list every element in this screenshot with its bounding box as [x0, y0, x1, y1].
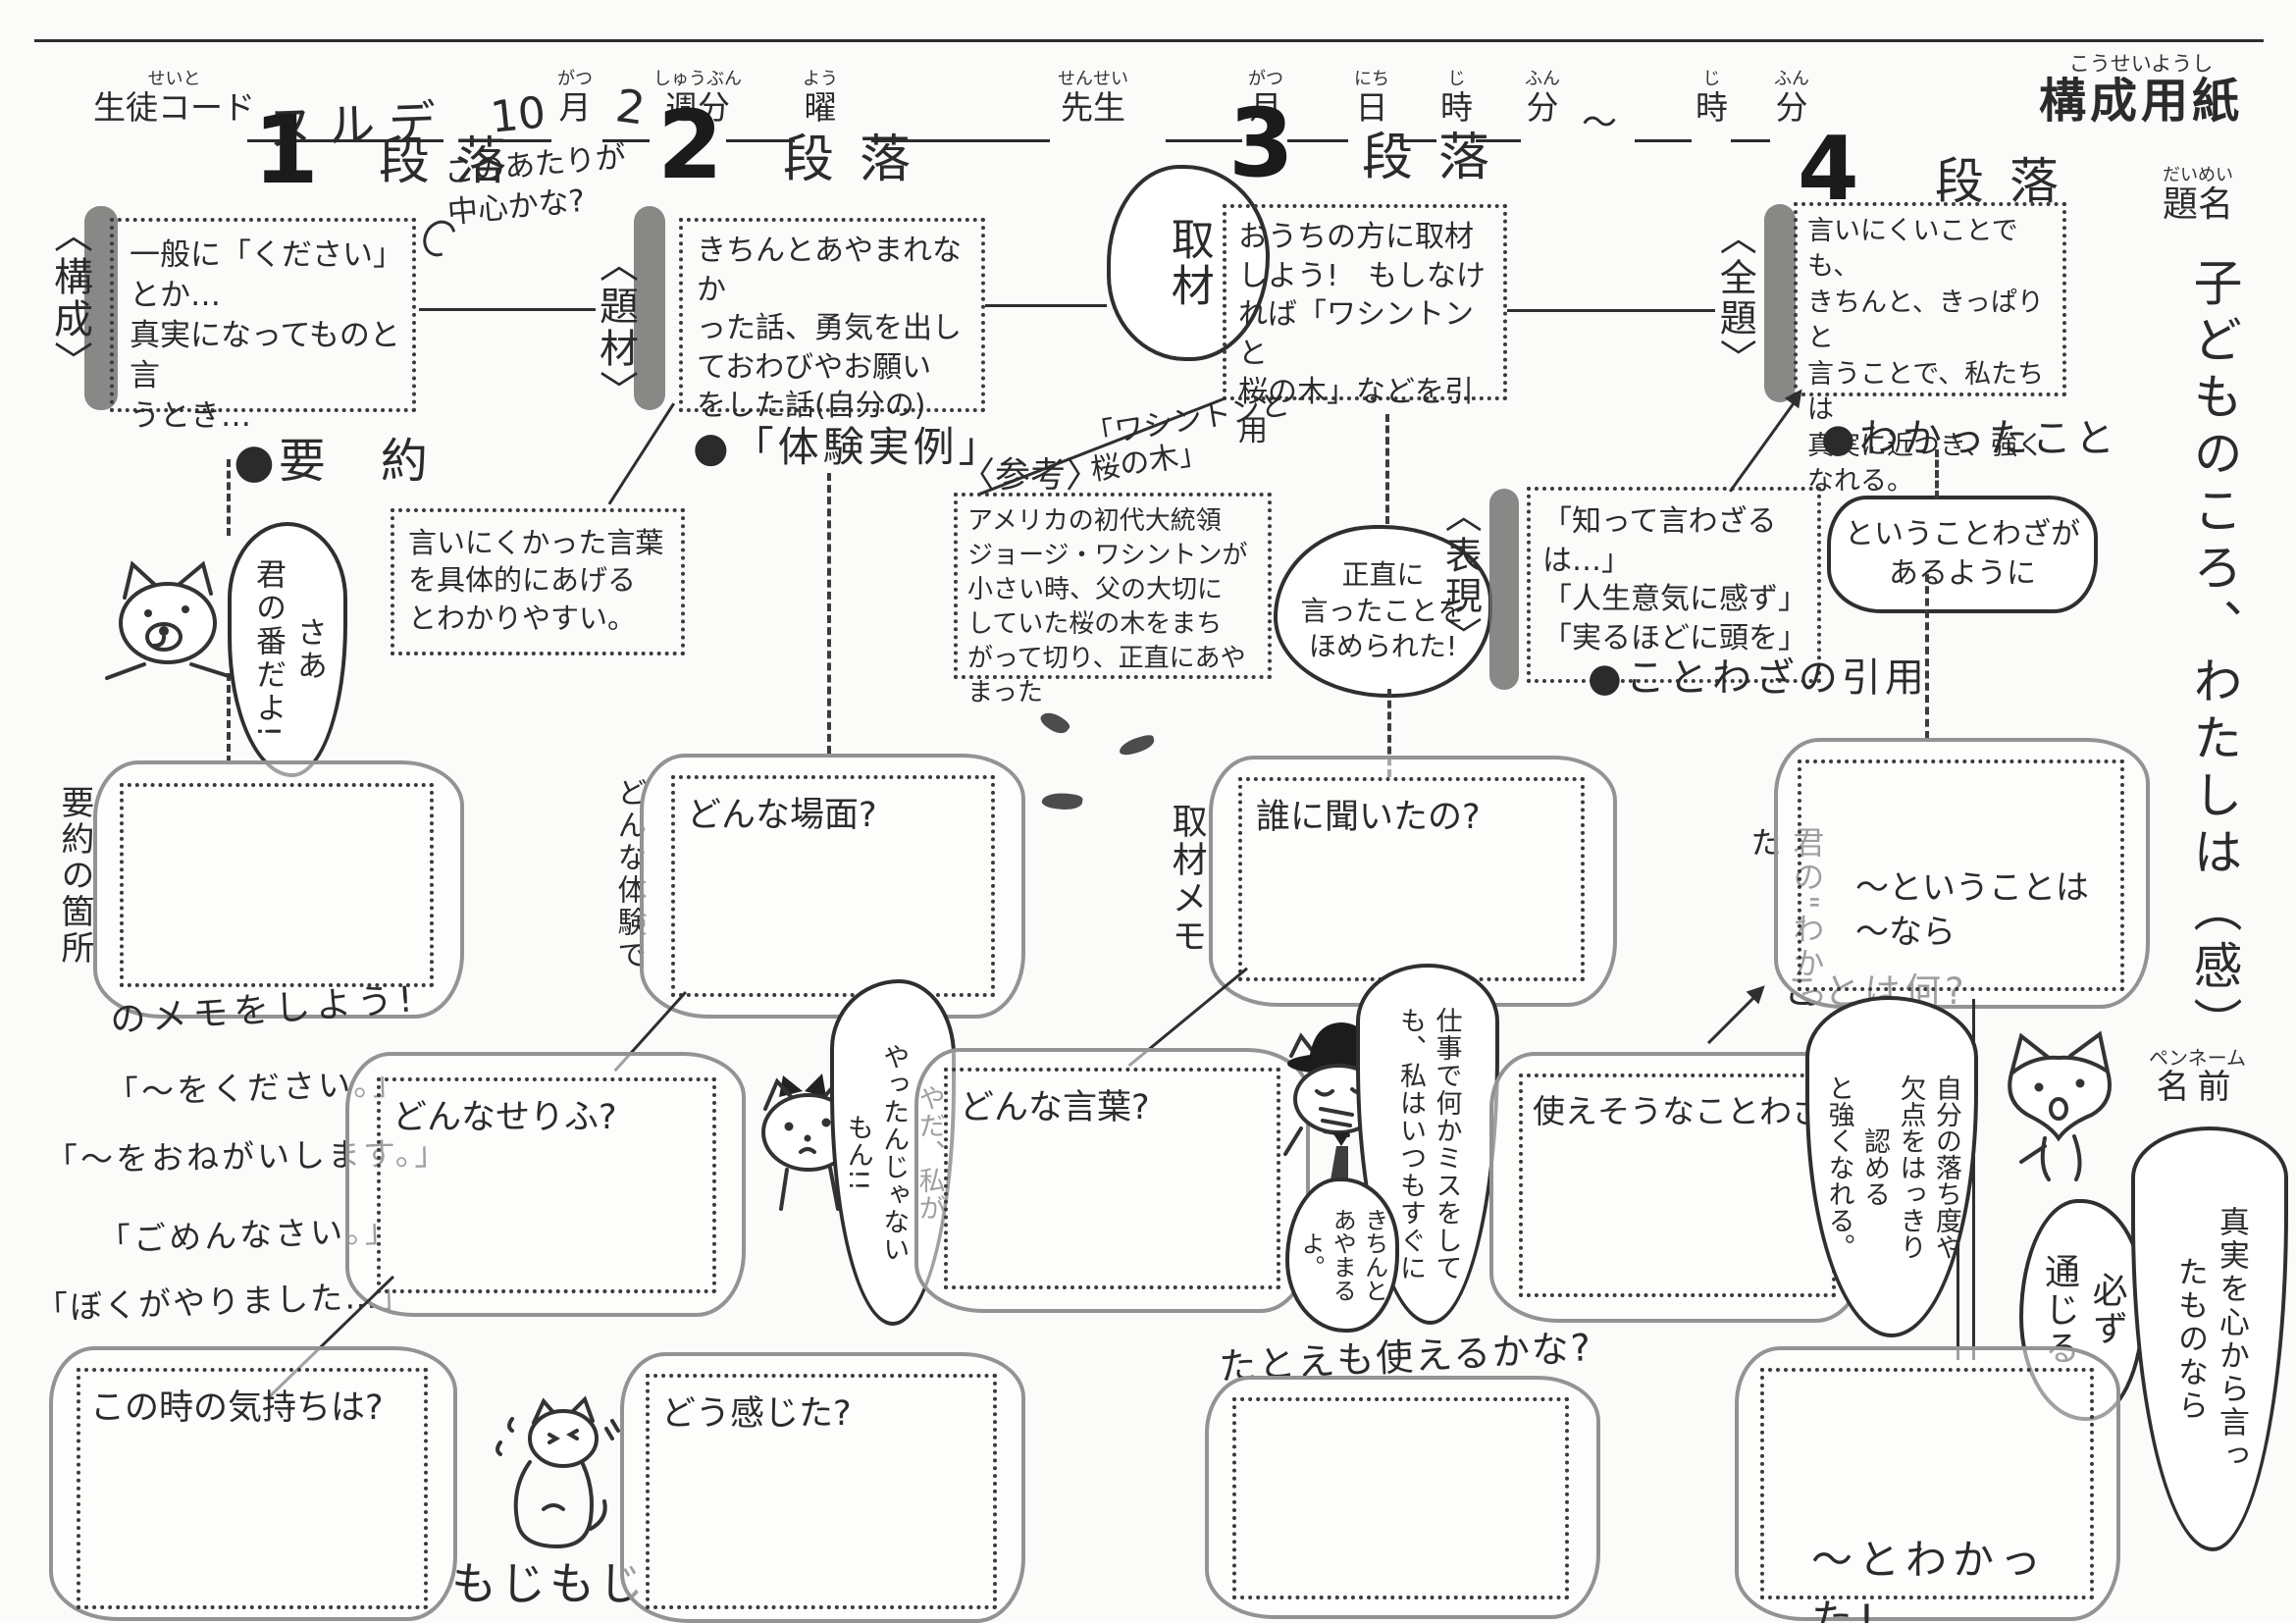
proverb-answer-box: 使えそうなことわざ — [1519, 1073, 1836, 1297]
jibun-bubble-text: 自分の落ち度や 欠点をはっきり 認める と強くなれる。 — [1820, 1074, 1963, 1260]
section2-box: きちんとあやまれなか った話、勇気を出し ておわびやお願い をした話(自分の) — [679, 218, 985, 412]
month-label: がつ 月 — [557, 71, 593, 124]
teacher-label: せんせい 先生 — [1058, 71, 1128, 124]
dash-s3-a — [1385, 414, 1389, 524]
worksheet-page: せいと 生徒コード ヌルデ 10 がつ 月 2 しゅうぶん 週分 よう 曜 せん… — [0, 0, 2296, 1623]
dog-character — [93, 554, 240, 687]
wakatta-answer-box: 〜とわかった! — [1760, 1368, 2094, 1599]
time-hour2-label: じ 時 — [1696, 71, 1728, 124]
teacher-kanji: 先生 — [1061, 91, 1125, 124]
hint-box: 言いにくかった言葉 を具体的にあげる とわかりやすい。 — [391, 508, 685, 655]
section2-bullet: ●「体験実例」 — [693, 414, 1004, 474]
time-hour2-underline — [1635, 139, 1692, 142]
student-code-field: せいと 生徒コード — [93, 71, 255, 124]
serifu-answer-box: どんなせりふ? — [377, 1077, 716, 1293]
fox-bubble-2: 真実を心から言っ たものなら — [2131, 1126, 2288, 1551]
time-min2-ruby: ふん — [1774, 71, 1809, 88]
shy-cat-character — [479, 1391, 626, 1553]
section4-bullet: ●わかったこと — [1821, 406, 2118, 463]
understood-answer-box: 〜ということは 〜なら — [1798, 759, 2124, 991]
section3-danraku: 段落 — [1362, 116, 1515, 189]
hyougen-tag: 〈表現〉 — [1435, 496, 1485, 707]
kotowaza-comment-bubble: ということわざが あるように — [1827, 496, 2098, 613]
connector-s3-s4 — [1507, 309, 1715, 312]
section2-number: 2 — [657, 98, 723, 192]
dash-s4-b — [1925, 574, 1929, 739]
week-value: 2 — [612, 79, 649, 135]
sheet-title-ruby: こうせいようし — [2069, 54, 2214, 75]
words-label: どんな言葉? — [960, 1079, 1150, 1129]
daimei-ruby: だいめい — [2163, 167, 2233, 184]
section4-marker-bar — [1764, 204, 1796, 402]
dog-speech-text: さあ 君の番だよ! — [246, 558, 329, 740]
date-day-underline — [1287, 139, 1348, 142]
daimei-field: だいめい 題名 — [2163, 167, 2233, 223]
penname-ruby: ペンネーム — [2149, 1048, 2246, 1068]
week-ruby: しゅうぶん — [653, 71, 742, 88]
sankou-title: 「ワシントンと 桜の木」 — [1083, 389, 1297, 488]
interview-answer-box: 誰に聞いたの? — [1238, 777, 1585, 981]
dash-s4-a — [1935, 449, 1939, 498]
sankou-tag: 〈参考〉 — [960, 446, 1101, 497]
felt-answer-box: どう感じた? — [646, 1374, 997, 1609]
month-ruby: がつ — [557, 71, 593, 88]
fox-character — [1990, 1028, 2127, 1185]
daimei-label: 題名 — [2163, 187, 2233, 223]
detective-bubble-small-text: きちんと あやまる よ。 — [1294, 1208, 1389, 1302]
dash-s2 — [827, 473, 831, 754]
words-answer-box: どんな言葉? — [944, 1068, 1280, 1289]
section4-tag: 〈全題〉 — [1709, 218, 1759, 424]
penname-field: ペンネーム 名前 — [2149, 1048, 2246, 1104]
detective-bubble-small: きちんと あやまる よ。 — [1285, 1178, 1399, 1333]
weekday-ruby: よう — [803, 71, 838, 88]
time-min-ruby: ふん — [1525, 71, 1560, 88]
summary-answer-box — [120, 783, 434, 987]
time-min2-underline — [1731, 139, 1770, 142]
mojimoji-label: もじもじ — [451, 1548, 648, 1613]
time-hour2-kanji: 時 — [1696, 91, 1728, 124]
felt-label: どう感じた? — [661, 1386, 852, 1436]
section4-box: 言いにくいことでも、 きちんと、きっぱりと 言うことで、私たちは 真実に近つき、… — [1794, 202, 2066, 396]
section1-bullet: ●要 約 — [234, 422, 432, 491]
interview-label: 誰に聞いたの? — [1256, 789, 1481, 839]
section1-number: 1 — [253, 103, 319, 197]
time-min2-label: ふん 分 — [1774, 71, 1809, 124]
sheet-title: こうせいようし 構成用紙 — [2039, 54, 2243, 125]
interview-side-label: 取材メモ — [1162, 803, 1210, 999]
section2-danraku: 段落 — [783, 118, 936, 191]
weekday-label: よう 曜 — [803, 71, 838, 124]
dog-speech-bubble: さあ 君の番だよ! — [228, 522, 347, 777]
connector-s1-s2 — [419, 308, 596, 311]
feelings-label: この時の気持ちは? — [90, 1380, 384, 1430]
section4-number: 4 — [1798, 126, 1859, 214]
summary-side-vertical: 要約の箇所 — [51, 785, 96, 1021]
hyougen-bullet: ●ことわざの引用 — [1588, 646, 1928, 703]
time-hour-ruby: じ — [1448, 71, 1466, 88]
teacher-ruby: せんせい — [1058, 71, 1128, 88]
scene-label: どんな場面? — [687, 787, 877, 837]
sankou-box: アメリカの初代大統領 ジョージ・ワシントンが 小さい時、父の大切に していた桜の… — [954, 493, 1272, 679]
proverb-label: 使えそうなことわざ — [1533, 1085, 1824, 1132]
top-rule — [34, 39, 2264, 42]
leaf-doodle-2 — [1118, 734, 1157, 758]
student-code-ruby: せいと — [148, 71, 201, 88]
section3-number: 3 — [1228, 96, 1294, 190]
serifu-label: どんなせりふ? — [392, 1089, 617, 1139]
section2-note: このあたりが 中心かな? — [443, 137, 631, 234]
sheet-title-text: 構成用紙 — [2039, 78, 2243, 125]
time-hour2-ruby: じ — [1703, 71, 1721, 88]
date-day-ruby: にち — [1354, 71, 1389, 88]
section1-tag: 〈構成〉 — [43, 214, 96, 445]
section1-box: 一般に「ください」とか… 真実になってものと言 うとき… — [110, 218, 416, 412]
hyougen-marker-bar — [1489, 489, 1519, 690]
student-code-label: 生徒コード — [93, 91, 255, 124]
wakatta-label: 〜とわかった! — [1811, 1527, 2090, 1623]
penname-label: 名前 — [2157, 1071, 2239, 1104]
fox-bubble-2-text: 真実を心から言っ たものなら — [2168, 1206, 2251, 1473]
section3-tag: 取材 — [1159, 217, 1217, 309]
dash-s1-a — [227, 459, 231, 536]
scene-answer-box: どんな場面? — [671, 775, 995, 997]
date-month-ruby: がつ — [1248, 71, 1283, 88]
time-min-kanji: 分 — [1527, 91, 1559, 124]
connector-s2-s3 — [985, 304, 1107, 307]
time-min-label: ふん 分 — [1525, 71, 1560, 124]
detective-bubble-text: 仕事で何かミスをして も、私はいつもすぐに — [1392, 1007, 1464, 1282]
leaf-doodle-3 — [1041, 790, 1083, 812]
tilde-mark: 〜 — [1582, 94, 1617, 145]
section2-tag: 〈題材〉 — [589, 243, 642, 474]
feelings-answer-box: この時の気持ちは? — [77, 1368, 428, 1609]
tatoe-answer-box — [1232, 1397, 1569, 1599]
understood-label: 〜ということは 〜なら — [1855, 866, 2089, 955]
month-kanji: 月 — [559, 91, 592, 124]
section3-box: おうちの方に取材 しよう! もしなけ れば「ワシントンと 桜の木」などを引用 — [1223, 204, 1507, 400]
composition-title-vertical: 子どものころ、わたしは（感） — [2180, 257, 2247, 1052]
leaf-doodle-1 — [1038, 707, 1071, 739]
